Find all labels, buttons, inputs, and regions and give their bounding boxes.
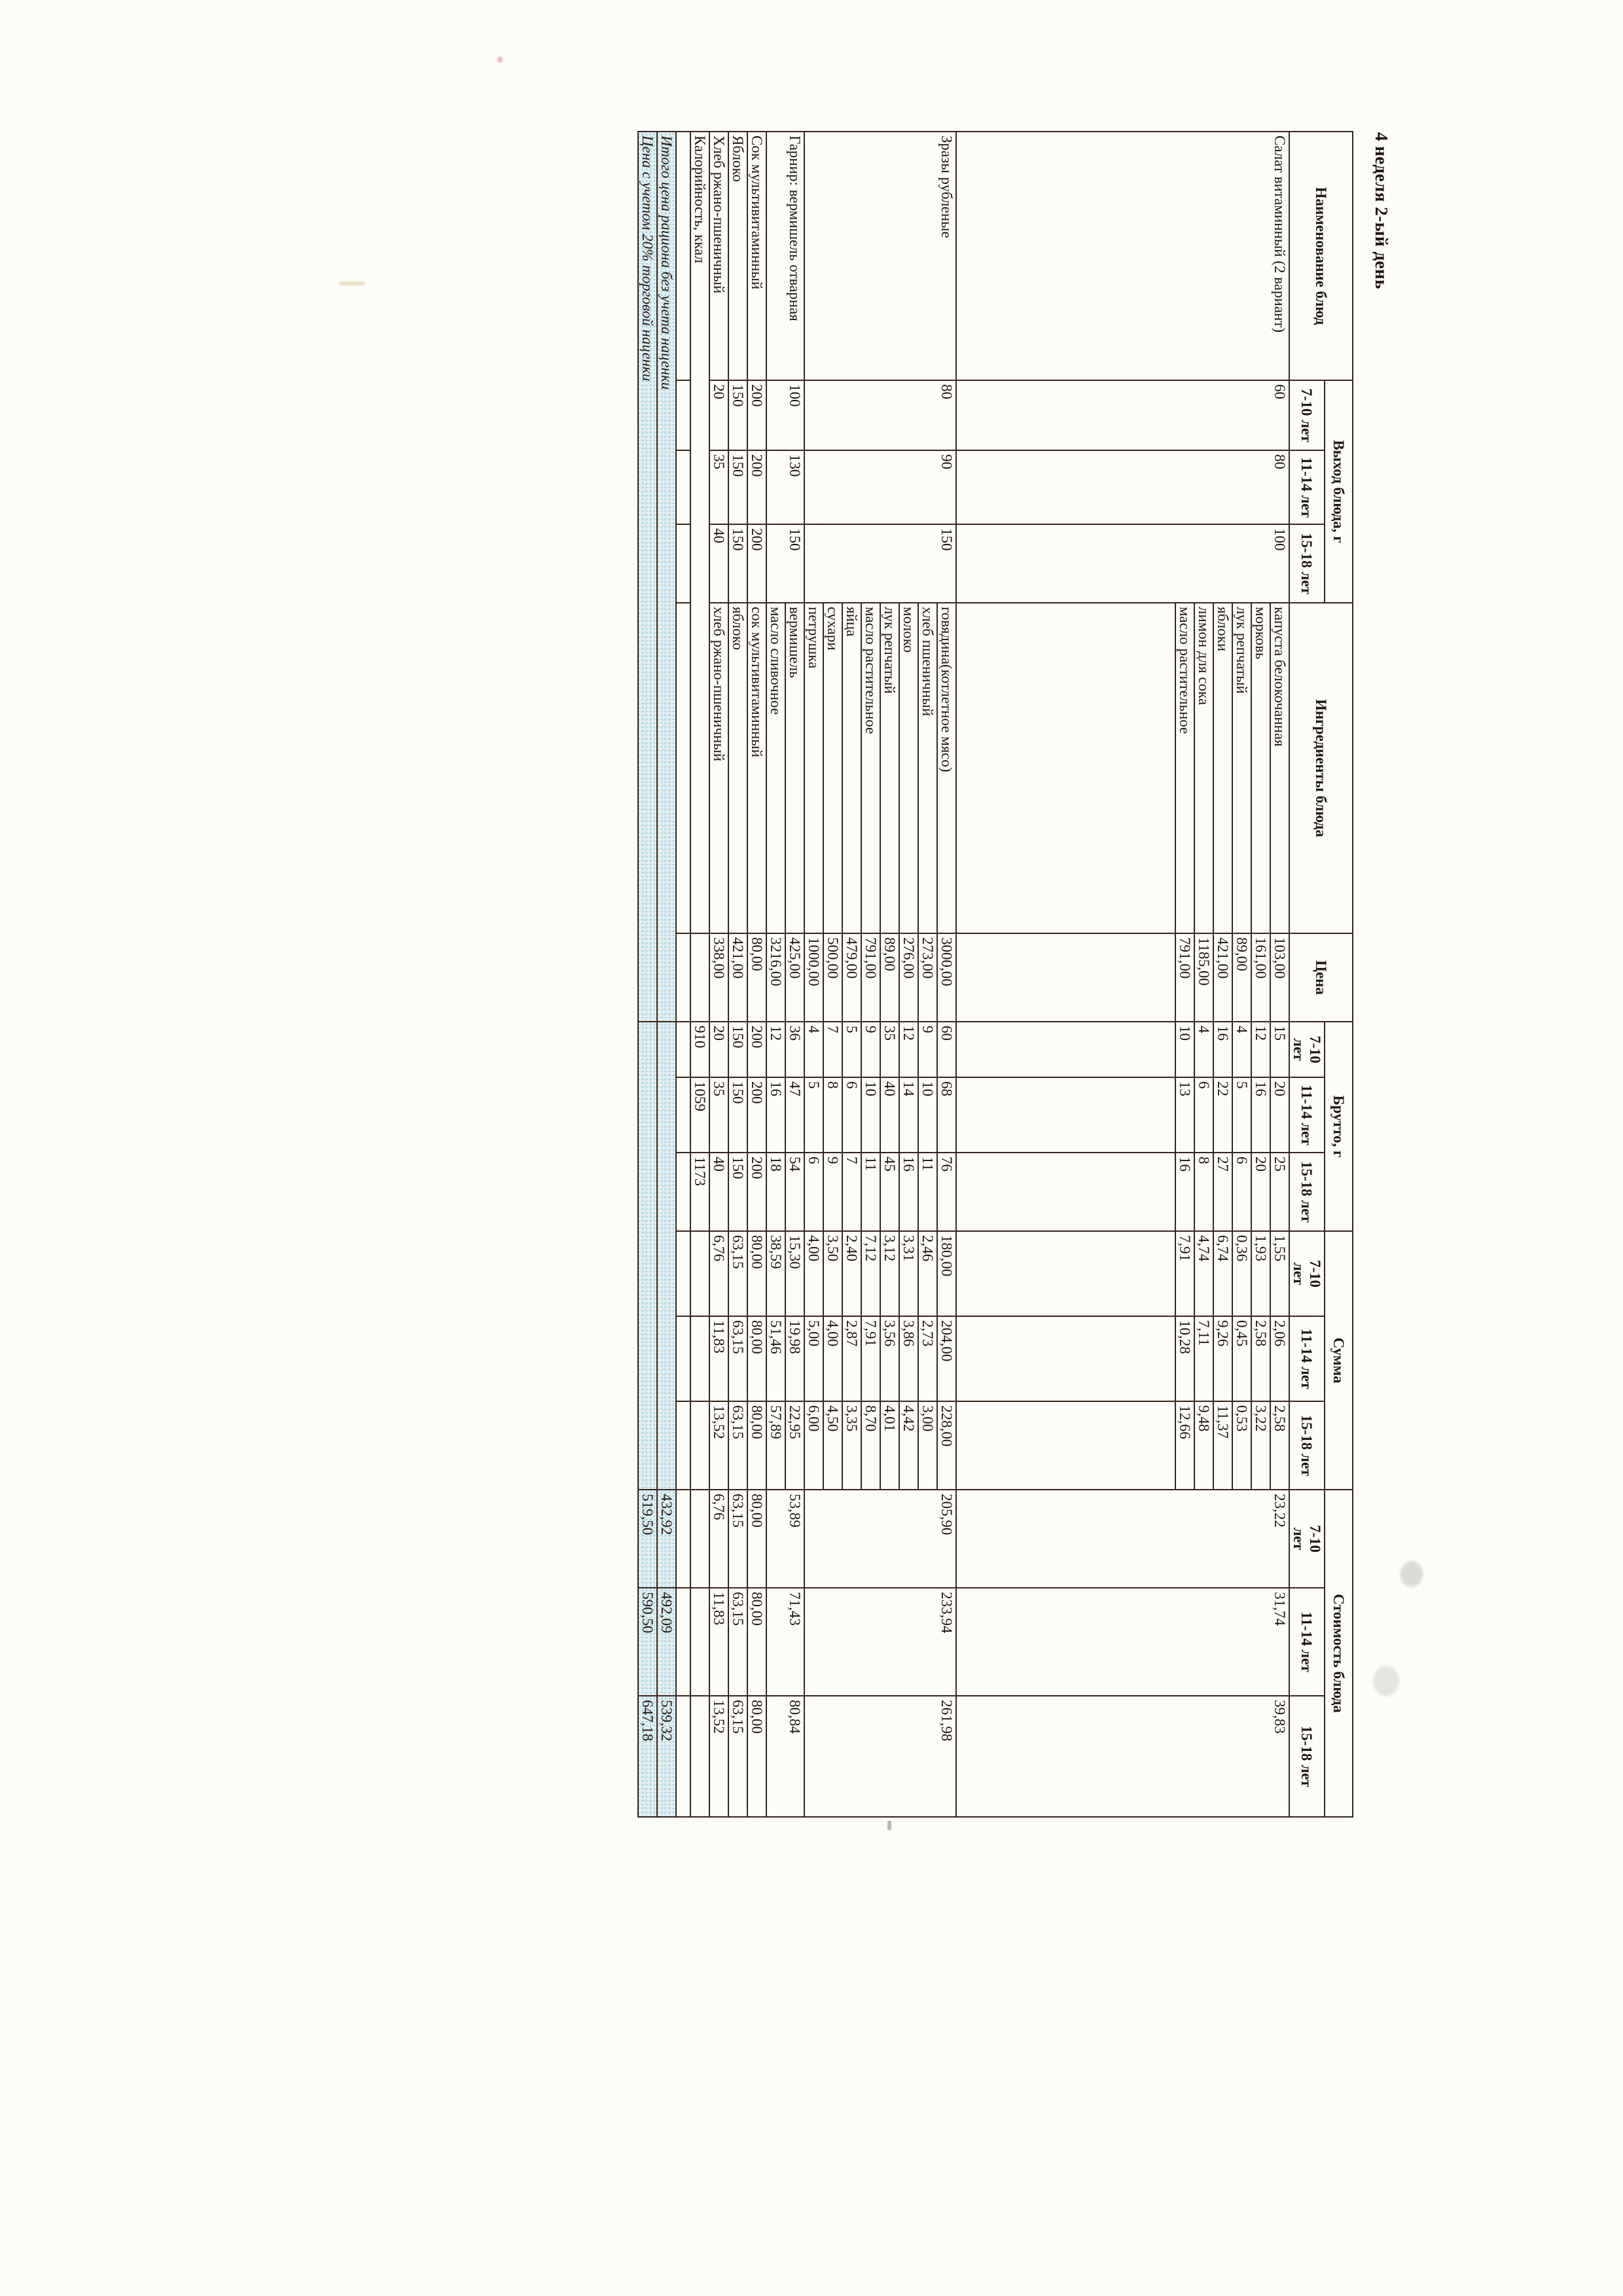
price-value: 500,00 xyxy=(823,933,842,1022)
ingredient-name: петрушка xyxy=(804,603,823,933)
sum-value: 4,00 xyxy=(804,1231,823,1316)
gross-value: 27 xyxy=(1213,1153,1232,1231)
sum-value: 22,95 xyxy=(785,1401,804,1490)
empty-cell xyxy=(676,1490,690,1588)
ingredient-name: говядина(котлетное мясо) xyxy=(937,603,956,933)
sum-value: 180,00 xyxy=(937,1231,956,1316)
price-value: 421,00 xyxy=(1213,933,1232,1022)
price-value: 791,00 xyxy=(1175,933,1194,1022)
price-value: 425,00 xyxy=(785,933,804,1022)
gross-value: 35 xyxy=(880,1022,899,1077)
empty-cell xyxy=(676,603,690,933)
gross-value: 150 xyxy=(728,1077,747,1153)
price-value: 338,00 xyxy=(709,933,728,1022)
empty-cell xyxy=(676,1077,690,1153)
gross-value: 35 xyxy=(709,1077,728,1153)
ingredient-name: яблоко xyxy=(728,603,747,933)
price-value: 479,00 xyxy=(842,933,861,1022)
gross-value: 5 xyxy=(1232,1077,1251,1153)
empty-cell xyxy=(956,603,1175,933)
subheader-sum-age-2: 11-14 лет xyxy=(1289,1316,1325,1401)
price-value: 791,00 xyxy=(861,933,880,1022)
dish-cost-value: 63,15 xyxy=(728,1490,747,1588)
sum-value: 9,48 xyxy=(1194,1401,1213,1490)
sum-value: 2,73 xyxy=(918,1316,937,1401)
empty-cell xyxy=(690,1316,709,1401)
sum-value: 6,74 xyxy=(1213,1231,1232,1316)
empty-cell xyxy=(676,1696,690,1817)
gross-value: 40 xyxy=(709,1153,728,1231)
scan-artifact xyxy=(1400,1561,1423,1587)
sum-value: 2,87 xyxy=(842,1316,861,1401)
yield-value: 80 xyxy=(956,450,1289,524)
dish-name: Гарнир: вермишель отварная xyxy=(766,132,804,380)
empty-cell xyxy=(956,933,1175,1022)
gross-value: 25 xyxy=(1270,1153,1289,1231)
empty-cell xyxy=(676,933,690,1022)
gross-value: 6 xyxy=(804,1153,823,1231)
empty-cell xyxy=(690,1490,709,1588)
sum-value: 3,86 xyxy=(899,1316,918,1401)
sum-value: 3,22 xyxy=(1251,1401,1270,1490)
gross-value: 20 xyxy=(1270,1077,1289,1153)
sum-value: 63,15 xyxy=(728,1401,747,1490)
calories-label: Калорийность, ккал xyxy=(690,132,709,933)
total-with-markup-row: Цена с учетом 20% торговой наценки519,50… xyxy=(638,132,657,1817)
sum-value: 2,06 xyxy=(1270,1316,1289,1401)
sum-value: 7,11 xyxy=(1194,1316,1213,1401)
sum-value: 4,50 xyxy=(823,1401,842,1490)
sum-value: 0,53 xyxy=(1232,1401,1251,1490)
col-header-yield-group: Выход блюда, г xyxy=(1325,380,1353,603)
sum-value: 1,93 xyxy=(1251,1231,1270,1316)
subheader-yield-age-1: 7-10 лет xyxy=(1289,380,1325,450)
yield-value: 150 xyxy=(766,524,804,603)
sum-value: 19,98 xyxy=(785,1316,804,1401)
empty-cell xyxy=(676,524,690,603)
yield-value: 150 xyxy=(728,450,747,524)
dish-ingredient-row: Яблоко150150150яблоко421,0015015015063,1… xyxy=(728,132,747,1817)
total-value: 492,09 xyxy=(657,1588,676,1696)
sum-value: 63,15 xyxy=(728,1316,747,1401)
gross-value: 54 xyxy=(785,1153,804,1231)
dish-cost-value: 39,83 xyxy=(956,1696,1289,1817)
ingredient-name: сок мультивитаминный xyxy=(747,603,766,933)
dish-cost-value: 80,00 xyxy=(747,1696,766,1817)
gross-value: 16 xyxy=(766,1077,785,1153)
sum-value: 57,89 xyxy=(766,1401,785,1490)
yield-value: 35 xyxy=(709,450,728,524)
gross-value: 7 xyxy=(842,1153,861,1231)
subheader-cost-age-2: 11-14 лет xyxy=(1289,1588,1325,1696)
gross-value: 6 xyxy=(1194,1077,1213,1153)
sum-value: 3,00 xyxy=(918,1401,937,1490)
gross-value: 16 xyxy=(1175,1153,1194,1231)
ingredient-name: капуста белокочанная xyxy=(1270,603,1289,933)
empty-cell xyxy=(676,1316,690,1401)
gross-value: 10 xyxy=(861,1077,880,1153)
price-value: 161,00 xyxy=(1251,933,1270,1022)
dish-cost-value: 63,15 xyxy=(728,1696,747,1817)
col-header-dish: Наименование блюд xyxy=(1289,132,1353,380)
sum-value: 9,26 xyxy=(1213,1316,1232,1401)
gross-value: 4 xyxy=(1194,1022,1213,1077)
price-value: 80,00 xyxy=(747,933,766,1022)
dish-cost-value: 11,83 xyxy=(709,1588,728,1696)
empty-cell xyxy=(956,1316,1175,1401)
dish-cost-value: 63,15 xyxy=(728,1588,747,1696)
total-label: Цена с учетом 20% торговой наценки xyxy=(638,132,657,1022)
sum-value: 10,28 xyxy=(1175,1316,1194,1401)
sum-value: 2,58 xyxy=(1270,1401,1289,1490)
ingredient-name: яйца xyxy=(842,603,861,933)
sum-value: 0,36 xyxy=(1232,1231,1251,1316)
empty-cell xyxy=(690,1588,709,1696)
total-value: 590,50 xyxy=(638,1588,657,1696)
calories-value: 1173 xyxy=(690,1153,709,1231)
subheader-cost-age-1: 7-10 лет xyxy=(1289,1490,1325,1588)
gross-value: 5 xyxy=(804,1077,823,1153)
col-header-ingredients: Ингредиенты блюда xyxy=(1289,603,1353,933)
price-value: 273,00 xyxy=(918,933,937,1022)
sum-value: 4,42 xyxy=(899,1401,918,1490)
gross-value: 16 xyxy=(1251,1077,1270,1153)
empty-cell xyxy=(690,1401,709,1490)
gross-value: 16 xyxy=(899,1153,918,1231)
yield-value: 150 xyxy=(804,524,956,603)
total-value: 647,18 xyxy=(638,1696,657,1817)
yield-value: 90 xyxy=(804,450,956,524)
menu-cost-table: Наименование блюд Выход блюда, г Ингреди… xyxy=(637,131,1353,1818)
sum-value: 4,00 xyxy=(823,1316,842,1401)
dish-cost-value: 23,22 xyxy=(956,1490,1289,1588)
gross-value: 22 xyxy=(1213,1077,1232,1153)
gross-value: 60 xyxy=(937,1022,956,1077)
total-without-markup-row: Итого цена рациона без учета наценки432,… xyxy=(657,132,676,1817)
empty-cell xyxy=(956,1153,1175,1231)
sum-value: 3,35 xyxy=(842,1401,861,1490)
col-header-cost-group: Стоимость блюда xyxy=(1325,1490,1353,1817)
sum-value: 7,12 xyxy=(861,1231,880,1316)
sum-value: 80,00 xyxy=(747,1231,766,1316)
sum-value: 4,74 xyxy=(1194,1231,1213,1316)
yield-value: 150 xyxy=(728,524,747,603)
gross-value: 5 xyxy=(842,1022,861,1077)
dish-name: Зразы рубленые xyxy=(804,132,956,380)
gross-value: 36 xyxy=(785,1022,804,1077)
gross-value: 12 xyxy=(1251,1022,1270,1077)
empty-cell xyxy=(676,1588,690,1696)
gross-value: 7 xyxy=(823,1022,842,1077)
ingredient-name: лук репчатый xyxy=(1232,603,1251,933)
gross-value: 76 xyxy=(937,1153,956,1231)
yield-value: 60 xyxy=(956,380,1289,450)
gross-value: 150 xyxy=(728,1153,747,1231)
dish-ingredient-row: Гарнир: вермишель отварная100130150верми… xyxy=(785,132,804,1817)
col-header-price: Цена xyxy=(1289,933,1353,1022)
ingredient-name: лимон для сока xyxy=(1194,603,1213,933)
subheader-yield-age-2: 11-14 лет xyxy=(1289,450,1325,524)
separator-row xyxy=(676,132,690,1817)
yield-value: 200 xyxy=(747,380,766,450)
sum-value: 38,59 xyxy=(766,1231,785,1316)
empty-cell xyxy=(676,1401,690,1490)
empty-cell xyxy=(690,1696,709,1817)
gross-value: 20 xyxy=(709,1022,728,1077)
col-header-gross-group: Брутто, г xyxy=(1325,1022,1353,1231)
subheader-gross-age-1: 7-10 лет xyxy=(1289,1022,1325,1077)
price-value: 3000,00 xyxy=(937,933,956,1022)
dish-cost-value: 71,43 xyxy=(766,1588,804,1696)
sum-value: 80,00 xyxy=(747,1401,766,1490)
sum-value: 3,12 xyxy=(880,1231,899,1316)
gross-value: 8 xyxy=(823,1077,842,1153)
gross-value: 11 xyxy=(861,1153,880,1231)
sum-value: 51,46 xyxy=(766,1316,785,1401)
sum-value: 4,01 xyxy=(880,1401,899,1490)
empty-cell xyxy=(956,1022,1175,1077)
dish-name: Сок мультивитаминный xyxy=(747,132,766,380)
gross-value: 10 xyxy=(1175,1022,1194,1077)
gross-value: 47 xyxy=(785,1077,804,1153)
empty-cell xyxy=(956,1231,1175,1316)
dish-cost-value: 233,94 xyxy=(804,1588,956,1696)
sum-value: 3,31 xyxy=(899,1231,918,1316)
empty-cell xyxy=(676,1153,690,1231)
sum-value: 11,83 xyxy=(709,1316,728,1401)
gross-value: 40 xyxy=(880,1077,899,1153)
calories-value: 1059 xyxy=(690,1077,709,1153)
page-title: 4 неделя 2-ый день xyxy=(1353,131,1394,1833)
price-value: 1185,00 xyxy=(1194,933,1213,1022)
price-value: 89,00 xyxy=(880,933,899,1022)
total-value: 432,92 xyxy=(657,1490,676,1588)
gross-value: 6 xyxy=(842,1077,861,1153)
sum-value: 80,00 xyxy=(747,1316,766,1401)
sum-value: 204,00 xyxy=(937,1316,956,1401)
gross-value: 12 xyxy=(766,1022,785,1077)
dish-cost-value: 6,76 xyxy=(709,1490,728,1588)
yield-value: 130 xyxy=(766,450,804,524)
gross-value: 9 xyxy=(918,1022,937,1077)
gross-value: 10 xyxy=(918,1077,937,1153)
gross-value: 8 xyxy=(1194,1153,1213,1231)
gross-value: 4 xyxy=(1232,1022,1251,1077)
empty-cell xyxy=(676,1231,690,1316)
gross-value: 45 xyxy=(880,1153,899,1231)
empty-cell xyxy=(676,380,690,450)
gross-value: 18 xyxy=(766,1153,785,1231)
total-value: 539,32 xyxy=(657,1696,676,1817)
yield-value: 40 xyxy=(709,524,728,603)
price-value: 421,00 xyxy=(728,933,747,1022)
subheader-cost-age-3: 15-18 лет xyxy=(1289,1696,1325,1817)
ingredient-name: хлеб ржано-пшеничный xyxy=(709,603,728,933)
dish-cost-value: 80,84 xyxy=(766,1696,804,1817)
dish-cost-value: 205,90 xyxy=(804,1490,956,1588)
sum-value: 228,00 xyxy=(937,1401,956,1490)
gross-value: 16 xyxy=(1213,1022,1232,1077)
ingredient-name: хлеб пшеничный xyxy=(918,603,937,933)
sum-value: 2,58 xyxy=(1251,1316,1270,1401)
sum-value: 2,46 xyxy=(918,1231,937,1316)
scan-artifact xyxy=(497,56,503,63)
dish-ingredient-row: Салат витаминный (2 вариант)6080100капус… xyxy=(1270,132,1289,1817)
gross-value: 200 xyxy=(747,1022,766,1077)
subheader-yield-age-3: 15-18 лет xyxy=(1289,524,1325,603)
rotated-sheet: 4 неделя 2-ый день Наименование блюд Вых… xyxy=(681,131,1394,1833)
sum-value: 8,70 xyxy=(861,1401,880,1490)
col-header-sum-group: Сумма xyxy=(1325,1231,1353,1490)
yield-value: 200 xyxy=(747,450,766,524)
yield-value: 20 xyxy=(709,380,728,450)
sum-value: 3,50 xyxy=(823,1231,842,1316)
ingredient-name: лук репчатый xyxy=(880,603,899,933)
sum-value: 2,40 xyxy=(842,1231,861,1316)
sum-value: 0,45 xyxy=(1232,1316,1251,1401)
dish-ingredient-row: Хлеб ржано-пшеничный203540хлеб ржано-пше… xyxy=(709,132,728,1817)
sum-value: 11,37 xyxy=(1213,1401,1232,1490)
gross-value: 13 xyxy=(1175,1077,1194,1153)
calories-value: 910 xyxy=(690,1022,709,1077)
gross-value: 9 xyxy=(823,1153,842,1231)
dish-ingredient-row: Сок мультивитаминный200200200сок мультив… xyxy=(747,132,766,1817)
empty-cell xyxy=(676,450,690,524)
price-value: 276,00 xyxy=(899,933,918,1022)
dish-cost-value: 53,89 xyxy=(766,1490,804,1588)
ingredient-name: масло растительное xyxy=(861,603,880,933)
dish-cost-value: 31,74 xyxy=(956,1588,1289,1696)
ingredient-name: яблоки xyxy=(1213,603,1232,933)
scanned-page: 4 неделя 2-ый день Наименование блюд Вых… xyxy=(0,0,1623,2296)
subheader-gross-age-2: 11-14 лет xyxy=(1289,1077,1325,1153)
ingredient-name: молоко xyxy=(899,603,918,933)
ingredient-name: сухари xyxy=(823,603,842,933)
empty-cell xyxy=(676,132,690,380)
empty-cell xyxy=(676,1022,690,1077)
total-value: 519,50 xyxy=(638,1490,657,1588)
dish-cost-value: 80,00 xyxy=(747,1490,766,1588)
empty-cell xyxy=(657,1022,676,1490)
price-value: 103,00 xyxy=(1270,933,1289,1022)
yield-value: 200 xyxy=(747,524,766,603)
sum-value: 1,55 xyxy=(1270,1231,1289,1316)
sum-value: 6,76 xyxy=(709,1231,728,1316)
sum-value: 6,00 xyxy=(804,1401,823,1490)
yield-value: 150 xyxy=(728,380,747,450)
ingredient-name: масло сливочное xyxy=(766,603,785,933)
ingredient-name: вермишель xyxy=(785,603,804,933)
ingredient-name: морковь xyxy=(1251,603,1270,933)
dish-name: Салат витаминный (2 вариант) xyxy=(956,132,1289,380)
dish-cost-value: 261,98 xyxy=(804,1696,956,1817)
sum-value: 63,15 xyxy=(728,1231,747,1316)
empty-cell xyxy=(956,1077,1175,1153)
dish-name: Хлеб ржано-пшеничный xyxy=(709,132,728,380)
gross-value: 200 xyxy=(747,1077,766,1153)
gross-value: 20 xyxy=(1251,1153,1270,1231)
yield-value: 100 xyxy=(766,380,804,450)
price-value: 1000,00 xyxy=(804,933,823,1022)
gross-value: 6 xyxy=(1232,1153,1251,1231)
gross-value: 200 xyxy=(747,1153,766,1231)
ingredient-name: масло растительное xyxy=(1175,603,1194,933)
sum-value: 3,56 xyxy=(880,1316,899,1401)
subheader-sum-age-3: 15-18 лет xyxy=(1289,1401,1325,1490)
sum-value: 7,91 xyxy=(861,1316,880,1401)
total-label: Итого цена рациона без учета наценки xyxy=(657,132,676,1022)
price-value: 3216,00 xyxy=(766,933,785,1022)
gross-value: 11 xyxy=(918,1153,937,1231)
dish-cost-value: 13,52 xyxy=(709,1696,728,1817)
gross-value: 150 xyxy=(728,1022,747,1077)
sum-value: 7,91 xyxy=(1175,1231,1194,1316)
gross-value: 15 xyxy=(1270,1022,1289,1077)
subheader-sum-age-1: 7-10 лет xyxy=(1289,1231,1325,1316)
scan-artifact xyxy=(339,281,365,285)
dish-name: Яблоко xyxy=(728,132,747,380)
sum-value: 5,00 xyxy=(804,1316,823,1401)
empty-cell xyxy=(956,1401,1175,1490)
gross-value: 12 xyxy=(899,1022,918,1077)
dish-ingredient-row: Зразы рубленые8090150говядина(котлетное … xyxy=(937,132,956,1817)
gross-value: 4 xyxy=(804,1022,823,1077)
gross-value: 68 xyxy=(937,1077,956,1153)
calories-row: Калорийность, ккал91010591173 xyxy=(690,132,709,1817)
sum-value: 12,66 xyxy=(1175,1401,1194,1490)
gross-value: 9 xyxy=(861,1022,880,1077)
empty-cell xyxy=(690,1231,709,1316)
yield-value: 100 xyxy=(956,524,1289,603)
gross-value: 14 xyxy=(899,1077,918,1153)
sum-value: 15,30 xyxy=(785,1231,804,1316)
yield-value: 80 xyxy=(804,380,956,450)
sum-value: 13,52 xyxy=(709,1401,728,1490)
empty-cell xyxy=(690,933,709,1022)
dish-cost-value: 80,00 xyxy=(747,1588,766,1696)
subheader-gross-age-3: 15-18 лет xyxy=(1289,1153,1325,1231)
empty-cell xyxy=(638,1022,657,1490)
price-value: 89,00 xyxy=(1232,933,1251,1022)
